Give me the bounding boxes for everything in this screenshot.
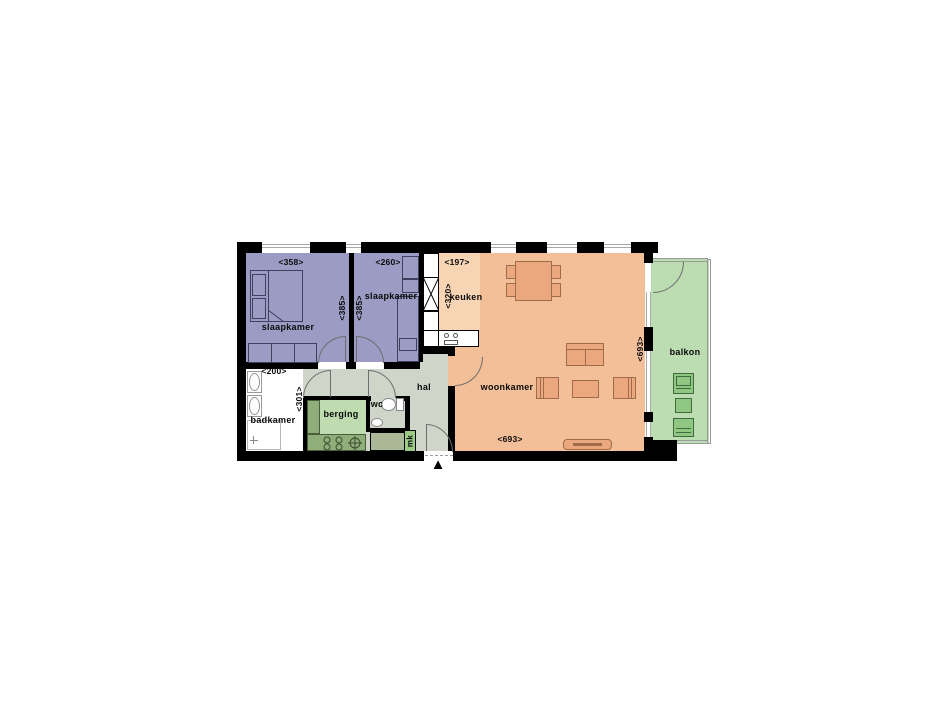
- kitchen-height-dim: <320>: [443, 283, 453, 308]
- wall-bedrooms-bottom-c: [384, 362, 420, 369]
- toilet-tank: [396, 398, 404, 411]
- wall-bottom-left: [237, 451, 424, 461]
- mullion-3: [644, 412, 653, 422]
- wall-bedrooms-bottom-b: [346, 362, 356, 369]
- window-glass-line: [346, 244, 361, 245]
- oven-front: [444, 340, 458, 345]
- bedroom2-height-dim: <385>: [354, 295, 364, 320]
- armchair-left-line-1: [540, 378, 541, 398]
- armchair-right-line-2: [631, 378, 632, 398]
- window-glass-line: [547, 247, 577, 248]
- living-height-dim: <693>: [635, 336, 645, 361]
- living-width-dim: <693>: [497, 434, 522, 444]
- wall-wc-right: [405, 396, 410, 432]
- window-glass-line: [262, 247, 310, 248]
- window-living-3: [604, 242, 631, 253]
- bedroom1-width-dim: <358>: [278, 257, 303, 267]
- dining-chair-4: [551, 283, 561, 297]
- glass-line-5: [646, 422, 647, 437]
- balcony-label: balkon: [670, 347, 701, 357]
- washbasin-1-bowl: [249, 373, 260, 391]
- kitchen-cabinet-cell: [423, 311, 439, 331]
- wc-basin: [371, 418, 383, 427]
- bed-pillow-1: [252, 274, 266, 296]
- hall-label: hal: [417, 382, 431, 392]
- balcony-railing-right: [707, 259, 711, 444]
- kitchen-label: keuken: [450, 292, 483, 302]
- floor-plan: slaapkamer <358> <385> slaapkamer <260> …: [0, 0, 952, 707]
- meter-cupboard-box: [370, 432, 405, 451]
- bedroom2-width-dim: <260>: [375, 257, 400, 267]
- armchair-left-line-2: [543, 378, 544, 398]
- glass-line-6: [650, 422, 651, 437]
- window-bedroom-divider: [346, 242, 361, 253]
- armchair-right: [613, 377, 636, 399]
- wall-bottom-right: [453, 451, 658, 461]
- balcony-chair-1-slat: [676, 388, 691, 389]
- glass-line-2: [650, 292, 651, 327]
- cooktop-burner-1: [444, 333, 449, 338]
- storage-cabinet: [307, 400, 320, 434]
- window-glass-line: [346, 247, 361, 248]
- balcony-chair-2-slat-1: [676, 428, 691, 429]
- wall-left: [237, 242, 246, 461]
- kitchen-width-dim: <197>: [444, 257, 469, 267]
- balcony-chair-1-inner: [676, 376, 691, 386]
- glass-line-3: [646, 351, 647, 412]
- bedroom1-label: slaapkamer: [262, 322, 315, 332]
- wall-living-left-a: [448, 347, 455, 356]
- kitchen-sink-cross: [423, 277, 439, 311]
- single-bed-pillow: [399, 338, 417, 351]
- wardrobe-divider-2: [294, 343, 295, 363]
- hall-floor-upper: [420, 354, 448, 370]
- bedroom2-cabinet: [402, 256, 419, 279]
- meter-cupboard-label: mk: [406, 435, 415, 447]
- bathroom-height-dim: <301>: [294, 386, 304, 411]
- mullion-2: [644, 327, 653, 351]
- glass-line-4: [650, 351, 651, 412]
- balcony-table: [675, 398, 692, 413]
- washbasin-2-bowl: [249, 397, 260, 415]
- bed-pillow-2: [252, 298, 266, 319]
- living-room-label: woonkamer: [481, 382, 534, 392]
- bathroom-label: badkamer: [251, 415, 296, 425]
- window-glass-line: [262, 244, 310, 245]
- wc-label: wc: [371, 399, 384, 409]
- window-glass-line: [491, 247, 516, 248]
- bedroom2-label: slaapkamer: [365, 291, 418, 301]
- bedroom1-height-dim: <385>: [337, 295, 347, 320]
- sideboard-handle: [573, 443, 602, 446]
- mullion-4: [644, 437, 653, 451]
- wardrobe-divider-1: [271, 343, 272, 363]
- window-glass-line: [491, 244, 516, 245]
- bedroom1-door-leaf: [345, 336, 346, 362]
- dining-table: [515, 261, 552, 301]
- glass-line-1: [646, 292, 647, 327]
- wc-door-leaf: [368, 370, 369, 397]
- wardrobe: [248, 343, 317, 363]
- coffee-table: [572, 380, 599, 398]
- shower-drain-v: [253, 436, 254, 444]
- bathroom-door-leaf: [330, 370, 331, 397]
- bathroom-width-dim: <200>: [261, 366, 286, 376]
- balcony-chair-2-slat-2: [676, 432, 691, 433]
- window-living-2: [547, 242, 577, 253]
- window-glass-line: [604, 244, 631, 245]
- entrance-arrow-icon: ▲: [431, 457, 446, 472]
- bed-fold-line: [268, 300, 290, 322]
- dining-chair-3: [551, 265, 561, 279]
- cooktop-burner-2: [453, 333, 458, 338]
- sofa-seat-divider: [585, 349, 586, 365]
- bedroom2-door-leaf: [356, 336, 357, 362]
- mullion-1: [644, 253, 653, 263]
- shower-drain-h: [250, 440, 258, 441]
- window-glass-line: [604, 247, 631, 248]
- entrance-door-leaf: [426, 424, 427, 451]
- window-bedroom1: [262, 242, 310, 253]
- storage-appliance-symbols: [307, 434, 367, 452]
- window-living-1: [491, 242, 516, 253]
- single-bed: [397, 296, 419, 362]
- window-glass-line: [547, 244, 577, 245]
- storage-label: berging: [323, 409, 358, 419]
- armchair-right-line-1: [628, 378, 629, 398]
